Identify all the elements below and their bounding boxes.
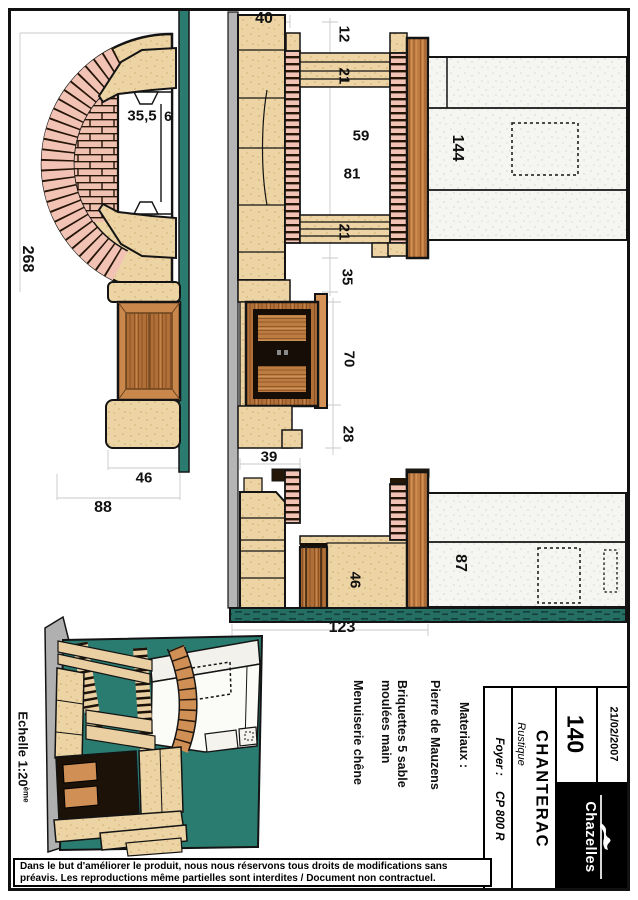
dim-bench-depth: 46: [136, 471, 153, 486]
dim-seg-lintel-top: 21: [337, 68, 352, 85]
foyer-label: Foyer :: [493, 738, 505, 776]
dim-top-offset: 40: [255, 11, 273, 27]
foyer-value: CP 800 R: [493, 791, 505, 840]
dim-foot-width: 39: [261, 450, 278, 465]
disclaimer-line-2: préavis. Les reproductions même partiell…: [20, 873, 485, 885]
scale-note: Echelle 1:20ème: [16, 711, 29, 802]
chazelles-logo: Chazelles: [574, 789, 614, 885]
dim-base-width: 123: [329, 620, 356, 636]
brand-name: Chazelles: [582, 789, 598, 885]
dim-plan-jamb: 6: [164, 109, 172, 123]
dim-seg-hearth: 35: [340, 269, 355, 286]
perspective-3d-view: [45, 617, 262, 856]
dim-plan-opening-width: 35,5: [127, 109, 156, 124]
model-style: Rustique: [515, 722, 527, 765]
scale-note-sup: ème: [22, 787, 31, 803]
floor-band: [230, 608, 626, 622]
scale-note-text: Echelle 1:20: [15, 711, 30, 786]
dim-seg-top: 12: [337, 26, 352, 43]
title-block-divider-3: [596, 688, 598, 784]
disclaimer: Dans le but d'améliorer le produit, nous…: [13, 858, 492, 887]
dim-cabinet-height: 70: [342, 351, 357, 368]
dim-plan-total-height: 268: [19, 246, 35, 273]
plan-view: [42, 34, 176, 294]
dim-hearth-depth: 46: [348, 572, 363, 589]
materials-line-stone: Pierre de Mauzens: [427, 680, 442, 830]
drawing-sheet: 40 35,5 6 268 12 21 59 81 21 35 144 70 2…: [0, 0, 638, 900]
dim-seg-lintel-bottom: 21: [337, 224, 352, 241]
materials-line-wood: Menuiserie chêne: [350, 680, 365, 830]
disclaimer-line-1: Dans le but d'améliorer le produit, nous…: [20, 861, 485, 873]
bench-side-view: [106, 282, 180, 448]
model-number: 140: [564, 715, 587, 753]
foyer-reference: Foyer : CP 800 R: [492, 738, 504, 841]
dim-opening-b: 81: [344, 167, 361, 182]
dim-opening-a: 59: [353, 129, 370, 144]
materials-line-bricks2: moulées main: [378, 680, 393, 830]
plan-wall-band: [179, 10, 189, 472]
logo-rule: [600, 795, 602, 879]
upper-elevation: [238, 15, 627, 280]
drawing-date: 21/02/2007: [608, 706, 619, 761]
section-wall-strip: [228, 12, 238, 608]
dim-block-height-lower: 87: [452, 554, 468, 572]
dim-block-height-upper: 144: [449, 135, 465, 162]
model-name: CHANTERAC: [533, 730, 550, 848]
cabinet-front-view: [238, 280, 327, 448]
materials-line-bricks: Briquettes 5 sable: [394, 680, 409, 830]
title-block: Foyer : CP 800 R Rustique CHANTERAC 140 …: [483, 686, 630, 891]
materials-title: Materiaux :: [456, 680, 471, 830]
gazelle-icon: [599, 822, 613, 852]
lower-elevation: [230, 469, 626, 622]
brand-cell: Chazelles: [555, 782, 628, 889]
title-block-divider-1: [511, 688, 513, 889]
dim-bench-total: 88: [94, 500, 112, 516]
dim-base-gap: 28: [341, 426, 356, 443]
